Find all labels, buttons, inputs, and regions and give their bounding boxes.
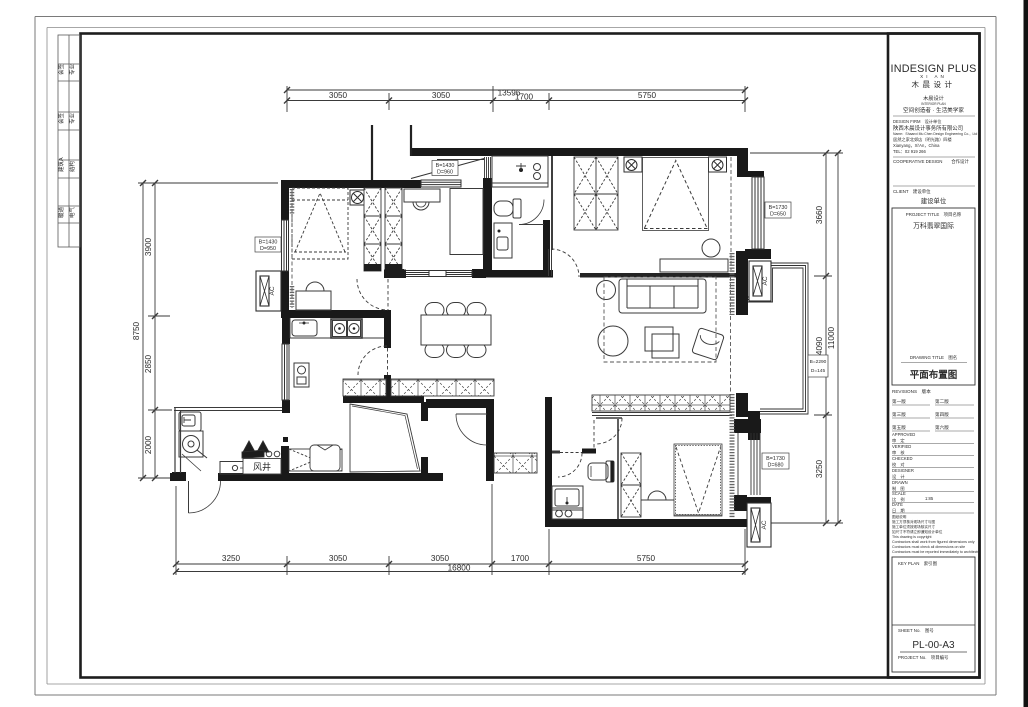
svg-text:AC: AC [761, 520, 768, 529]
svg-text:平面布置图: 平面布置图 [910, 369, 958, 381]
svg-text:DESIGN FIRM 设计单位: DESIGN FIRM 设计单位 [893, 118, 941, 125]
svg-text:万科翡翠国际: 万科翡翠国际 [913, 221, 954, 230]
svg-text:建设单位: 建设单位 [921, 196, 947, 205]
svg-text:This drawing is copyright: This drawing is copyright [892, 535, 932, 539]
svg-text:第五版: 第五版 [892, 424, 906, 431]
svg-text:DRAWING TITLE 图名: DRAWING TITLE 图名 [910, 354, 957, 361]
svg-text:B=1430: B=1430 [259, 240, 278, 246]
svg-text:DRAWN: DRAWN [892, 480, 908, 485]
svg-text:2850: 2850 [144, 354, 153, 373]
svg-text:B=1430: B=1430 [436, 163, 455, 169]
svg-text:DESIGNER: DESIGNER [892, 468, 914, 473]
svg-text:COOPERATIVE DESIGN 合作设计: COOPERATIVE DESIGN 合作设计 [893, 158, 969, 165]
svg-text:5750: 5750 [638, 91, 657, 100]
svg-text:设 计: 设 计 [892, 473, 905, 480]
svg-text:会签: 会签 [57, 63, 65, 75]
svg-text:16800: 16800 [448, 564, 471, 573]
svg-text:CHECKED: CHECKED [892, 456, 912, 461]
svg-text:INTERIOR PLAN: INTERIOR PLAN [921, 102, 946, 106]
svg-text:3250: 3250 [222, 554, 241, 563]
svg-text:3050: 3050 [431, 554, 450, 563]
svg-text:1700: 1700 [511, 554, 530, 563]
svg-text:1700: 1700 [515, 93, 534, 102]
svg-text:施工单位须按现场核实尺寸: 施工单位须按现场核实尺寸 [892, 524, 936, 529]
svg-text:TEL：02 919 266: TEL：02 919 266 [893, 149, 926, 154]
svg-text:电气: 电气 [68, 206, 76, 218]
svg-text:图纸说明: 图纸说明 [892, 514, 907, 519]
svg-text:Contractors must check all dim: Contractors must check all dimensions on… [892, 545, 965, 549]
svg-text:XI AN: XI AN [920, 74, 947, 79]
svg-text:3050: 3050 [329, 91, 348, 100]
svg-text:11000: 11000 [827, 326, 836, 349]
svg-text:D=680: D=680 [767, 463, 783, 469]
svg-text:D=145: D=145 [811, 368, 826, 374]
svg-text:木晨设计: 木晨设计 [923, 94, 944, 102]
svg-text:B=2290: B=2290 [810, 359, 827, 365]
svg-text:3900: 3900 [144, 237, 153, 256]
svg-text:第二版: 第二版 [935, 398, 949, 405]
svg-text:KEY PLAN 索引图: KEY PLAN 索引图 [898, 560, 938, 567]
svg-text:PROJECT TITLE 项目名称: PROJECT TITLE 项目名称 [906, 211, 962, 218]
svg-text:第一版: 第一版 [892, 398, 906, 405]
svg-text:1:85: 1:85 [925, 496, 934, 501]
svg-text:建筑A: 建筑A [57, 157, 65, 172]
svg-text:第三版: 第三版 [892, 411, 906, 418]
svg-text:风井: 风井 [253, 461, 271, 472]
svg-text:专业: 专业 [68, 63, 76, 75]
svg-text:陕西木晨设计事务所有限公司: 陕西木晨设计事务所有限公司 [893, 124, 963, 132]
svg-text:3660: 3660 [815, 205, 824, 224]
svg-text:空间创造者 · 生活美学家: 空间创造者 · 生活美学家 [903, 106, 964, 114]
svg-text:暖通: 暖通 [57, 206, 65, 218]
svg-text:B=1730: B=1730 [766, 456, 785, 462]
svg-text:第六版: 第六版 [935, 424, 949, 431]
svg-text:APPROVED: APPROVED [892, 432, 915, 437]
svg-text:施工方须核对现场尺寸与图: 施工方须核对现场尺寸与图 [892, 519, 936, 524]
svg-text:如尺寸不符请立即通知设计单位: 如尺寸不符请立即通知设计单位 [892, 529, 943, 534]
svg-text:Contractors must be reported i: Contractors must be reported immediately… [892, 550, 979, 554]
svg-text:AC: AC [762, 276, 769, 285]
svg-text:2000: 2000 [144, 435, 153, 454]
svg-text:CLIENT 建设单位: CLIENT 建设单位 [893, 188, 931, 195]
svg-text:8750: 8750 [132, 321, 141, 340]
svg-text:D=950: D=950 [260, 246, 276, 252]
svg-text:4090: 4090 [815, 336, 824, 355]
svg-text:第四版: 第四版 [935, 411, 949, 418]
svg-text:D=650: D=650 [770, 212, 786, 218]
svg-text:VERIFIED: VERIFIED [892, 444, 911, 449]
svg-text:审 核: 审 核 [892, 449, 905, 456]
svg-text:3050: 3050 [432, 91, 451, 100]
svg-text:结构: 结构 [68, 160, 76, 172]
svg-text:木晨设计: 木晨设计 [912, 79, 956, 89]
svg-text:审 定: 审 定 [892, 437, 905, 444]
svg-text:AC: AC [269, 286, 276, 295]
svg-text:3050: 3050 [329, 554, 348, 563]
svg-text:校 对: 校 对 [892, 461, 905, 468]
svg-text:PL-00-A3: PL-00-A3 [912, 640, 955, 651]
svg-text:PROJECT No. 项目编号: PROJECT No. 项目编号 [898, 654, 949, 661]
svg-text:REVISIONS 版本: REVISIONS 版本 [892, 388, 931, 395]
svg-text:B=1730: B=1730 [769, 205, 788, 211]
svg-text:居然之家北郊店（明光路）四楼: 居然之家北郊店（明光路）四楼 [893, 136, 952, 143]
svg-text:会签: 会签 [57, 112, 65, 124]
svg-text:D=960: D=960 [437, 170, 453, 176]
svg-text:5750: 5750 [637, 554, 656, 563]
svg-text:Contractors shall work from fi: Contractors shall work from figured dime… [892, 540, 975, 544]
svg-text:专业: 专业 [68, 112, 76, 124]
svg-text:3250: 3250 [815, 459, 824, 478]
svg-text:Name：Shaanxi Mu Chen Design En: Name：Shaanxi Mu Chen Design Engineering … [893, 132, 977, 136]
